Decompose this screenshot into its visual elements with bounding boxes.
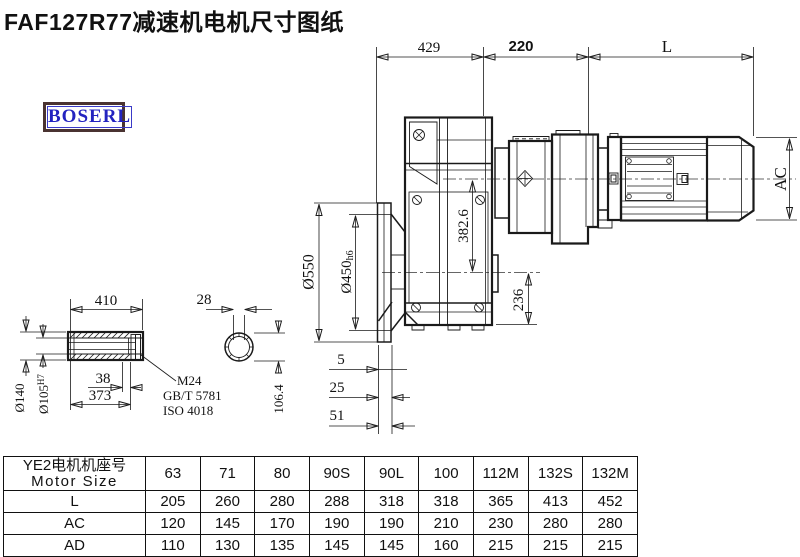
output-flange [378,203,406,434]
dim-shaft-od: Ø140 [12,384,27,413]
center-lines [382,179,796,273]
input-gear-unit [495,131,598,244]
cell: 452 [583,491,638,513]
cell: 130 [200,535,255,557]
row-label: AD [4,535,146,557]
callout-standard-iso: ISO 4018 [163,403,213,418]
cell: 215 [473,535,528,557]
col-header: 132S [528,457,583,491]
dim-236: 236 [511,288,527,311]
dim-L: L [662,37,672,56]
header-motor-size-en: Motor Size [4,474,145,490]
table-row: AC 120 145 170 190 190 210 230 280 280 [4,513,638,535]
col-header: 132M [583,457,638,491]
dim-429: 429 [418,40,441,56]
col-header: 100 [419,457,474,491]
cell: 135 [255,535,310,557]
header-motor-size-cn: YE2电机机座号 [4,458,145,474]
cell: 190 [364,513,419,535]
dim-25: 25 [330,380,345,396]
motor-adapter [598,134,621,229]
callout-standard-gb: GB/T 5781 [163,388,222,403]
cell: 205 [146,491,201,513]
dim-51: 51 [330,408,345,424]
cell: 160 [419,535,474,557]
hollow-shaft-detail: 410 38 373 [12,293,222,418]
cell: 280 [583,513,638,535]
callout-thread: M24 [177,373,202,388]
table-row: L 205 260 280 288 318 318 365 413 452 [4,491,638,513]
dim-spigot: Ø450h6 [339,250,356,293]
dim-bore: Ø105H7 [36,374,51,414]
cell: 120 [146,513,201,535]
dim-spigot-tol: h6 [345,250,356,260]
flange-face-dimensions: 5 25 51 [329,352,415,426]
dim-28: 28 [197,292,212,308]
cell: 215 [583,535,638,557]
dim-220: 220 [508,38,533,55]
row-label: L [4,491,146,513]
cell: 318 [364,491,419,513]
top-dimensions: 429 220 L [377,37,754,203]
dim-5: 5 [337,352,345,368]
cell: 110 [146,535,201,557]
motor-size-table: YE2电机机座号 Motor Size 63 71 80 90S 90L 100… [3,456,638,557]
ring-hatch [225,333,253,361]
col-header: 90L [364,457,419,491]
header-motor-size: YE2电机机座号 Motor Size [4,457,146,491]
col-header: 90S [309,457,364,491]
bolt-icons [412,130,485,313]
cell: 145 [200,513,255,535]
dim-373: 373 [89,388,112,404]
dim-flange-od: Ø550 [301,254,318,290]
cell: 365 [473,491,528,513]
cell: 318 [419,491,474,513]
cell: 210 [419,513,474,535]
col-header: 71 [200,457,255,491]
col-header: 112M [473,457,528,491]
dim-ac: AC [771,167,790,191]
dim-382-6: 382.6 [456,209,472,243]
cell: 288 [309,491,364,513]
hatch-marks [70,332,130,360]
row-label: AC [4,513,146,535]
table-row: AD 110 130 135 145 145 160 215 215 215 [4,535,638,557]
table-header-row: YE2电机机座号 Motor Size 63 71 80 90S 90L 100… [4,457,638,491]
cell: 260 [200,491,255,513]
dim-bore-tol: H7 [36,374,46,385]
cell: 145 [364,535,419,557]
dim-106-4: 106.4 [271,384,286,414]
technical-drawing: 429 220 L [0,0,800,455]
dim-bore-value: Ø105 [36,385,51,414]
cell: 280 [528,513,583,535]
cell: 170 [255,513,310,535]
col-header: 63 [146,457,201,491]
cell: 280 [255,491,310,513]
cell: 145 [309,535,364,557]
dim-410: 410 [95,293,118,309]
col-header: 80 [255,457,310,491]
dim-spigot-value: Ø450 [339,260,355,293]
cell: 190 [309,513,364,535]
dim-38: 38 [96,371,111,387]
cell: 230 [473,513,528,535]
cell: 215 [528,535,583,557]
gearbox-housing [405,118,498,331]
cell: 413 [528,491,583,513]
drawing-sheet: FAF127R77减速机电机尺寸图纸 BOSERL 429 220 [0,0,800,557]
